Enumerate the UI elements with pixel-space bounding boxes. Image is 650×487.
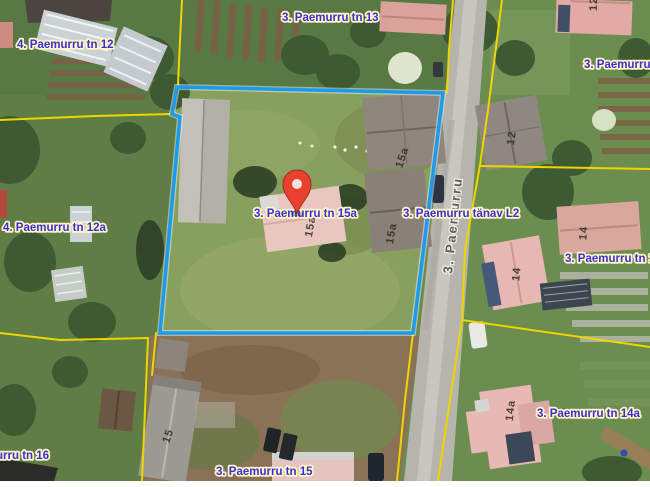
address-label-tn13[interactable]: 3. Paemurru tn 13: [282, 12, 379, 24]
building-number: 12: [505, 130, 519, 146]
address-label-tn12[interactable]: 4. Paemurru tn 12: [17, 39, 114, 51]
aerial-map-canvas[interactable]: 15a 15a 15a 15 12 12 14 14 14a 3. Paemur…: [0, 0, 650, 487]
address-label-tn14a[interactable]: 3. Paemurru tn 14a: [537, 408, 641, 420]
address-label-tanav-l2[interactable]: 3. Paemurru tänav L2: [403, 208, 519, 220]
address-label-tn14[interactable]: 3. Paemurru tn 14: [565, 253, 650, 265]
address-label-tn16[interactable]: urru tn 16: [0, 450, 49, 462]
building-number: 14a: [504, 399, 518, 421]
address-label-tn15a[interactable]: 3. Paemurru tn 15a: [254, 208, 358, 220]
address-label-tn12-right[interactable]: 3. Paemurru tn: [584, 59, 650, 71]
address-label-tn15[interactable]: 3. Paemurru tn 15: [216, 466, 313, 478]
building-number: 14: [577, 225, 590, 240]
address-label-tn12a[interactable]: 4. Paemurru tn 12a: [3, 222, 107, 234]
building-number: 12: [588, 0, 600, 11]
building-number: 14: [510, 266, 523, 281]
image-margin: [0, 481, 650, 487]
map-layers: 15a 15a 15a 15 12 12 14 14 14a 3. Paemur…: [0, 0, 650, 487]
building-barn: [178, 98, 230, 224]
